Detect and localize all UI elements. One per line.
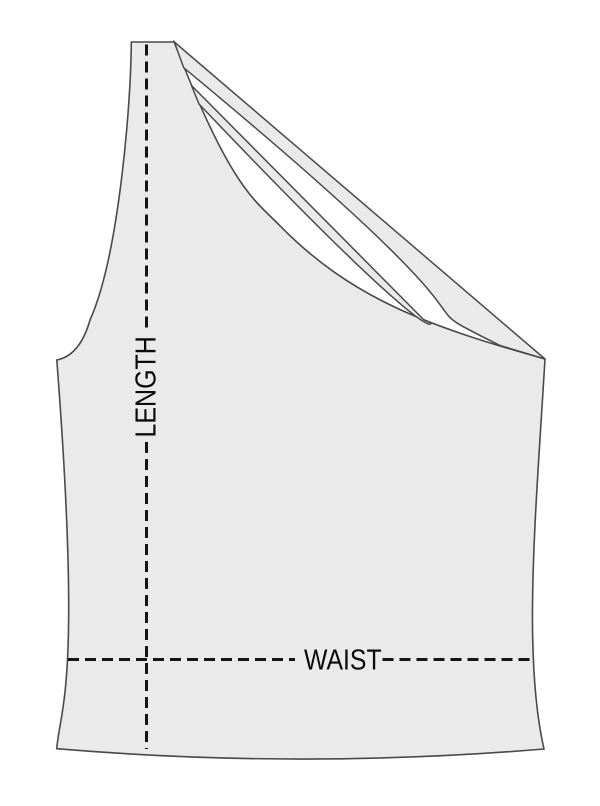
svg-text:WAIST: WAIST bbox=[304, 645, 382, 677]
svg-text:LENGTH: LENGTH bbox=[131, 336, 163, 437]
